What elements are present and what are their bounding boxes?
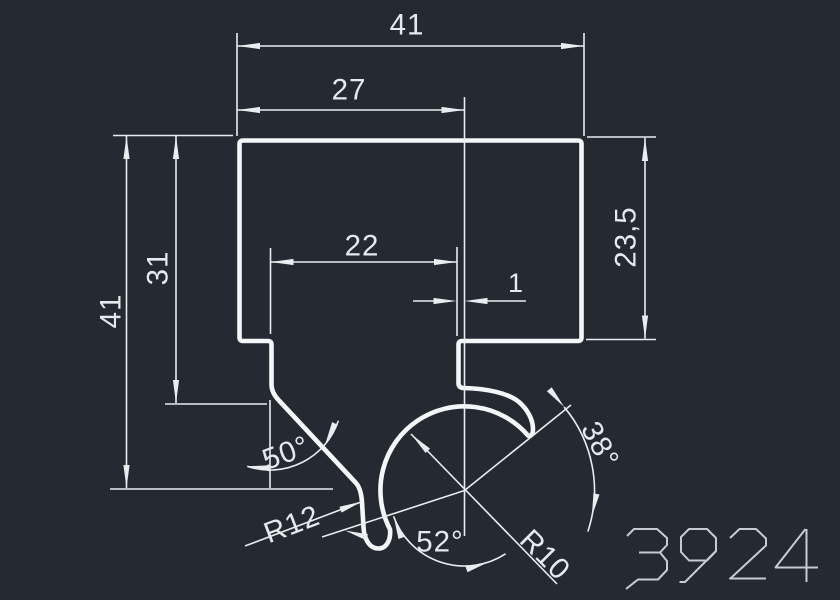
- svg-text:27: 27: [332, 74, 367, 107]
- svg-text:31: 31: [142, 251, 175, 286]
- svg-text:52°: 52°: [416, 526, 464, 559]
- svg-text:22: 22: [345, 230, 380, 263]
- svg-text:41: 41: [95, 294, 128, 329]
- svg-text:23,5: 23,5: [610, 206, 643, 267]
- svg-text:1: 1: [508, 268, 524, 298]
- svg-text:41: 41: [390, 9, 425, 42]
